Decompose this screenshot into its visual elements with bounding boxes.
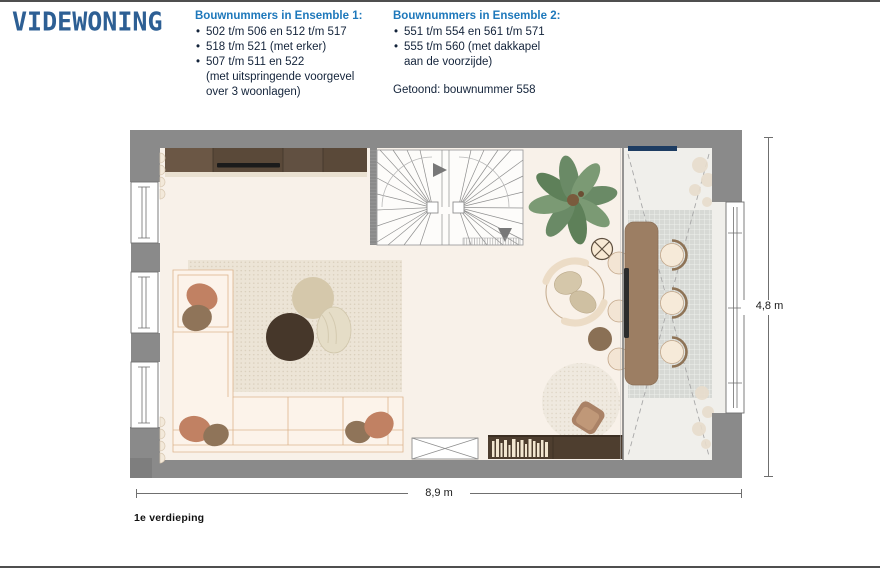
ensemble1-item: 502 t/m 506 en 512 t/m 517 bbox=[195, 25, 381, 40]
dimension-tick bbox=[764, 476, 773, 477]
ensemble1-item: 518 t/m 521 (met erker) bbox=[195, 40, 381, 55]
round-rug bbox=[542, 363, 620, 441]
dining-bench bbox=[624, 268, 629, 338]
ensemble1-title: Bouwnummers in Ensemble 1: bbox=[195, 9, 381, 24]
dormer-window-marker bbox=[628, 146, 677, 151]
ensemble2-item: 551 t/m 554 en 561 t/m 571 bbox=[393, 25, 585, 40]
ensemble1-block: Bouwnummers in Ensemble 1: 502 t/m 506 e… bbox=[195, 9, 381, 100]
dimension-tick bbox=[136, 489, 137, 498]
ensemble2-title: Bouwnummers in Ensemble 2: bbox=[393, 9, 585, 24]
wall-left-pier2 bbox=[131, 333, 160, 362]
floor-level-label: 1e verdieping bbox=[134, 512, 204, 524]
wardrobe-cabinets bbox=[165, 148, 367, 177]
dimension-tick bbox=[741, 489, 742, 498]
radiator bbox=[412, 438, 478, 459]
dimension-width-label: 8,9 m bbox=[408, 487, 470, 501]
wall-bottom bbox=[130, 460, 742, 478]
winder-staircase bbox=[370, 148, 523, 245]
ensemble2-list: 551 t/m 554 en 561 t/m 571 555 t/m 560 (… bbox=[393, 25, 585, 70]
dining-chairs-right bbox=[661, 241, 687, 367]
window-left-1 bbox=[131, 182, 158, 243]
ensemble1-item: 507 t/m 511 en 522 (met uitspringende vo… bbox=[195, 55, 381, 100]
bookshelf-cabinet bbox=[488, 435, 623, 459]
ensemble2-item: 555 t/m 560 (met dakkapel aan de voorzij… bbox=[393, 40, 585, 70]
dimension-height-label: 4,8 m bbox=[741, 300, 798, 315]
floorplan bbox=[130, 130, 752, 478]
pendant-light-symbol bbox=[592, 239, 613, 260]
wall-corner-dark bbox=[130, 458, 152, 478]
window-left-2 bbox=[131, 272, 158, 333]
wall-left-top bbox=[130, 130, 160, 182]
shown-bouwnummer-note: Getoond: bouwnummer 558 bbox=[393, 83, 585, 98]
floorplan-drawing bbox=[130, 130, 752, 478]
page-top-border bbox=[0, 0, 880, 2]
wall-right-top bbox=[712, 130, 742, 202]
wall-left-pier1 bbox=[131, 243, 160, 272]
floorplan-page: { "brand": { "logo_text": "VIDEWONING" }… bbox=[0, 0, 880, 568]
side-table bbox=[588, 327, 612, 351]
brand-logo: VIDEWONING bbox=[12, 7, 163, 37]
wall-top bbox=[130, 130, 742, 148]
dining-table bbox=[625, 222, 658, 385]
window-left-3 bbox=[131, 362, 158, 428]
ensemble1-list: 502 t/m 506 en 512 t/m 517 518 t/m 521 (… bbox=[195, 25, 381, 100]
wall-right-bottom bbox=[712, 413, 742, 478]
dimension-tick bbox=[764, 137, 773, 138]
ensemble2-block: Bouwnummers in Ensemble 2: 551 t/m 554 e… bbox=[393, 9, 585, 98]
